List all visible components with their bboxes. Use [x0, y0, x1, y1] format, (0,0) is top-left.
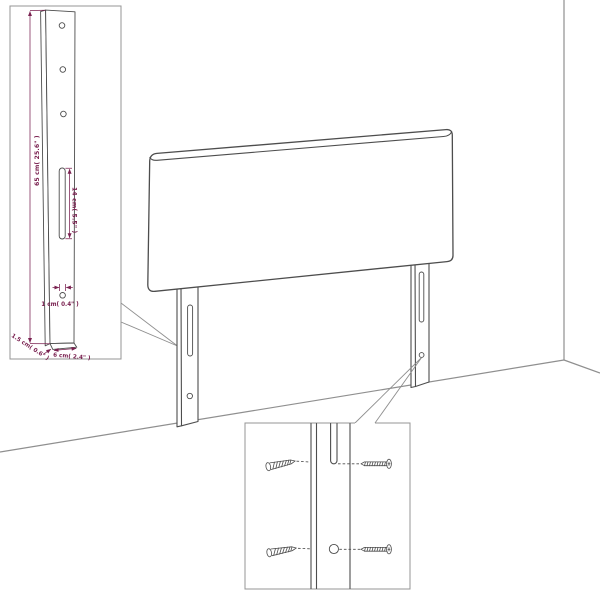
right-leg-slot — [419, 272, 424, 322]
headboard-left-leg — [177, 285, 198, 427]
detail-leg-hole-3 — [61, 111, 67, 117]
mount-detail-callout-lines — [355, 358, 422, 424]
mount-detail-inset — [245, 423, 410, 589]
mount-hole — [329, 544, 338, 553]
detail-leg-hole-2 — [60, 67, 66, 73]
detail-leg-hole-4 — [60, 293, 66, 299]
leg-detail-callout-lines — [121, 303, 178, 346]
headboard-assembly-diagram: 65 cm( 25.6" ) 14 cm( 5.5" ) 1 cm( 0.4" … — [0, 0, 600, 600]
detail-leg-slot — [59, 168, 65, 239]
leg-detail-inset: 65 cm( 25.6" ) 14 cm( 5.5" ) 1 cm( 0.4" … — [10, 6, 121, 362]
headboard-panel — [148, 130, 453, 292]
left-leg-hole — [187, 393, 192, 398]
right-leg-hole — [419, 353, 424, 358]
headboard-right-leg — [411, 256, 429, 388]
dim-hole-label: 1 cm( 0.4" ) — [41, 302, 79, 308]
detail-leg-hole-1 — [59, 23, 65, 29]
detail-leg-drawing — [41, 10, 77, 349]
floor-line-right — [564, 360, 600, 373]
dim-slot-label: 14 cm( 5.5" ) — [71, 187, 78, 233]
dim-height-label: 65 cm( 25.6" ) — [34, 135, 41, 186]
left-leg-slot — [188, 305, 193, 356]
